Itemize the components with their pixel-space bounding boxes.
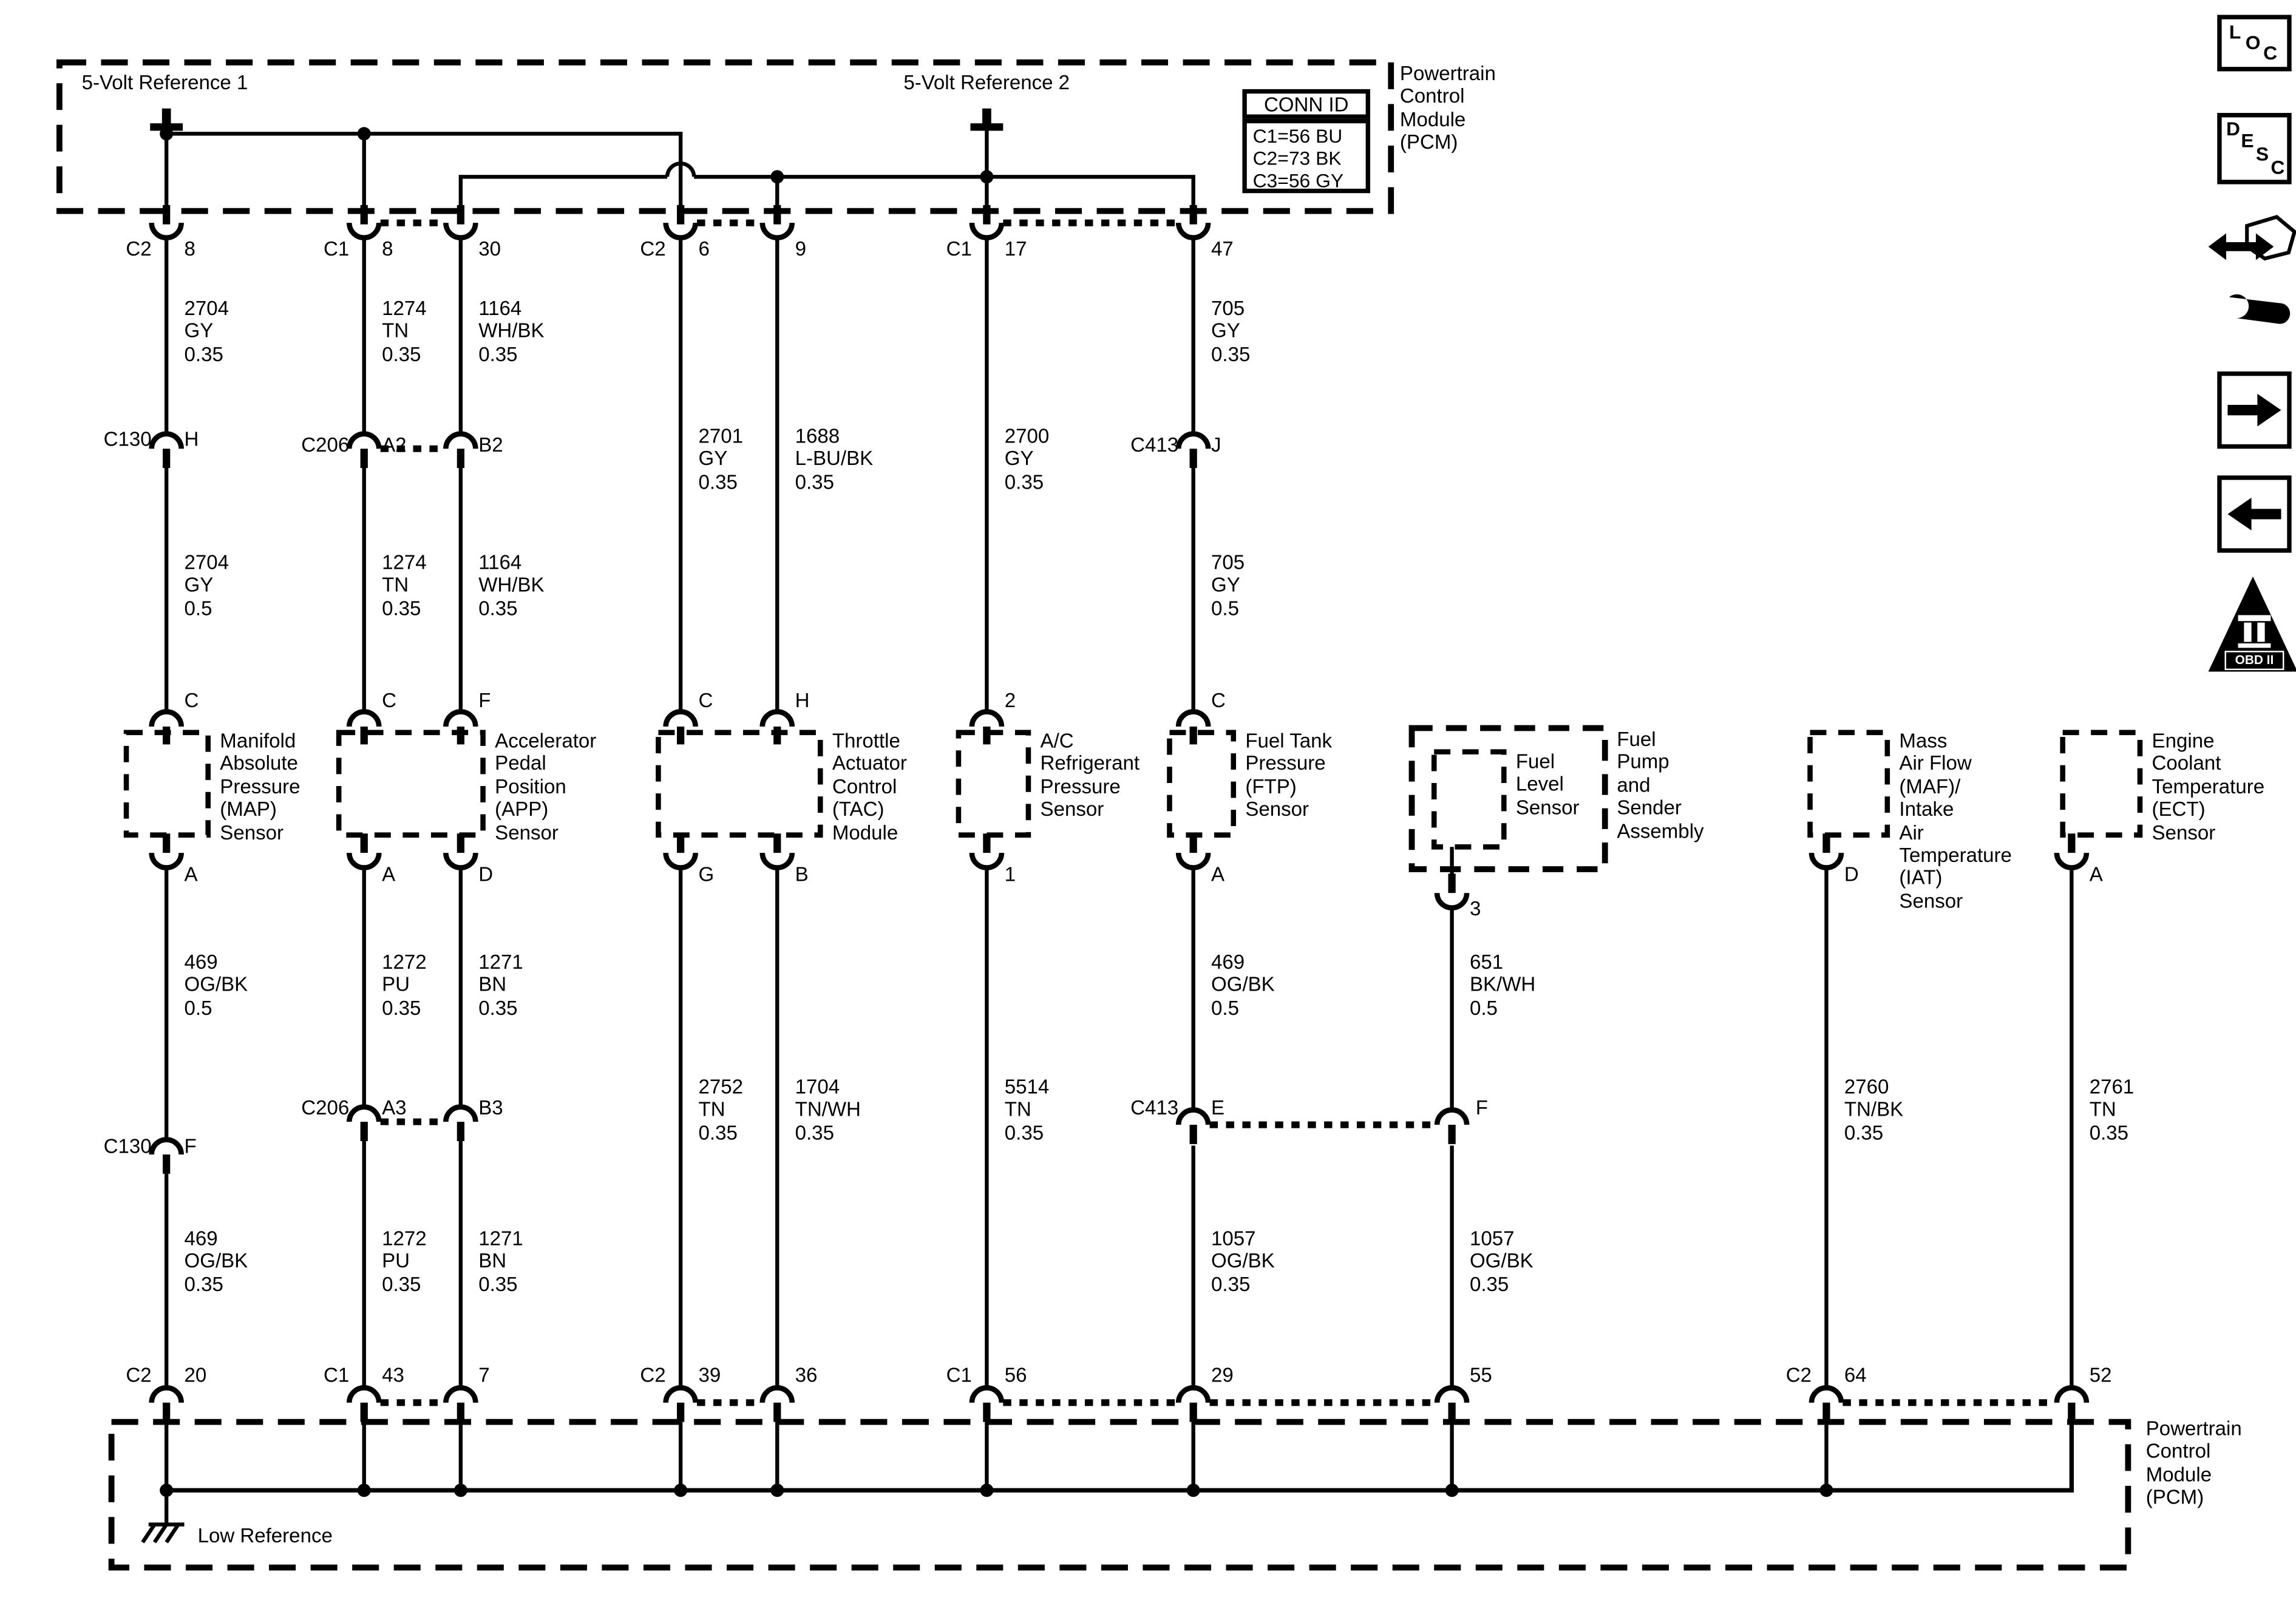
c413-pin-f: F (1476, 1097, 1488, 1120)
next-page-button[interactable] (2217, 371, 2291, 449)
wire-1274-a: 1274 TN 0.35 (382, 297, 427, 366)
wires-into-pcm (166, 1422, 1826, 1491)
prev-page-button[interactable] (2217, 475, 2291, 552)
map-sensor-label: Manifold Absolute Pressure (MAP) Sensor (220, 730, 300, 844)
c413-label-2: C413 (1113, 1097, 1178, 1120)
rowb-pin-43: 43 (382, 1364, 404, 1387)
wire-1164-b: 1164 WH/BK 0.35 (478, 551, 544, 620)
pin-top-tac-h: H (795, 690, 810, 713)
wire-1271-b: 1271 BN 0.35 (478, 1227, 523, 1296)
rowb-conn-c1: C1 (284, 1364, 350, 1387)
row1-pin-6: 6 (699, 238, 710, 261)
power-terminal-icon (150, 109, 1003, 131)
pin-bot-tac-b: B (795, 863, 809, 886)
wiring-nav-tool-icon[interactable] (2209, 214, 2296, 350)
row1-conn-c1: C1 (284, 238, 350, 261)
rowb-pin-7: 7 (478, 1364, 489, 1387)
wire-2701: 2701 GY 0.35 (699, 425, 744, 493)
c413-pin-e: E (1211, 1097, 1224, 1120)
row1-pin-17: 17 (1005, 238, 1027, 261)
sensor-top-pins (152, 712, 1208, 727)
connector-links-row3 (381, 1122, 1436, 1125)
pin-bot-tac-g: G (699, 863, 715, 886)
pin-top-app-f: F (478, 690, 491, 713)
wiring-diagram-page: 5-Volt Reference 1 5-Volt Reference 2 CO… (0, 0, 2296, 1616)
wire-651: 651 BK/WH 0.5 (1470, 951, 1535, 1020)
c206-label: C206 (284, 434, 350, 457)
arrow-left-icon (2222, 480, 2288, 549)
wire-2761: 2761 TN 0.35 (2090, 1076, 2135, 1144)
rowb-pin-29: 29 (1211, 1364, 1234, 1387)
wire-469-b: 469 OG/BK 0.5 (1211, 951, 1275, 1020)
rowb-conn-c1b: C1 (906, 1364, 972, 1387)
arrow-right-icon (2222, 376, 2288, 444)
ftp-sensor-box (1169, 733, 1233, 835)
maf-iat-label: Mass Air Flow (MAF)/ Intake Air Temperat… (1899, 730, 2012, 912)
wire-5514: 5514 TN 0.35 (1005, 1076, 1050, 1144)
c206-pin-b2: B2 (478, 434, 503, 457)
pcm-top-pins (152, 223, 1208, 237)
ect-sensor-label: Engine Coolant Temperature (ECT) Sensor (2152, 730, 2265, 844)
pin-bot-fuel-3: 3 (1470, 898, 1481, 921)
pin-bot-app-d: D (478, 863, 493, 886)
pin-bot-maf-d: D (1844, 863, 1859, 886)
row1-conn-c2: C2 (86, 238, 152, 261)
wire-1272-a: 1272 PU 0.35 (382, 951, 427, 1020)
wire-2752: 2752 TN 0.35 (699, 1076, 744, 1144)
row1-pin-8b: 8 (382, 238, 393, 261)
rowb-pin-55: 55 (1470, 1364, 1492, 1387)
wire-2704-b: 2704 GY 0.5 (185, 551, 229, 620)
pin-bot-app-a: A (382, 863, 395, 886)
map-sensor-box (126, 733, 208, 835)
loc-letter-c: C (2263, 42, 2277, 64)
desc-letter-e: E (2241, 129, 2254, 152)
c206-pin-a2: A2 (382, 434, 406, 457)
wire-1271-a: 1271 BN 0.35 (478, 951, 523, 1020)
wire-705-a: 705 GY 0.35 (1211, 297, 1250, 366)
c130-label: C130 (86, 428, 152, 451)
desc-letter-s: S (2256, 143, 2269, 165)
wire-469-c: 469 OG/BK 0.35 (185, 1227, 248, 1296)
rowb-pin-20: 20 (185, 1364, 207, 1387)
c206-pin-a3: A3 (382, 1097, 406, 1120)
wire-1688: 1688 L-BU/BK 0.35 (795, 425, 874, 493)
c206-pin-b3: B3 (478, 1097, 503, 1120)
row1-pin-8: 8 (185, 238, 195, 261)
tac-module-label: Throttle Actuator Control (TAC) Module (832, 730, 907, 844)
row1-pin-30: 30 (478, 238, 501, 261)
rowb-conn-c2: C2 (86, 1364, 152, 1387)
row1-pin-47: 47 (1211, 238, 1234, 261)
ref2-label: 5-Volt Reference 2 (903, 71, 1070, 94)
sensor-bottom-pins (152, 853, 2087, 908)
wire-1057-a: 1057 OG/BK 0.35 (1211, 1227, 1275, 1296)
low-reference-label: Low Reference (198, 1525, 333, 1548)
ftp-sensor-label: Fuel Tank Pressure (FTP) Sensor (1245, 730, 1332, 821)
pin-bot-ect-a: A (2090, 863, 2103, 886)
c206-label-2: C206 (284, 1097, 350, 1120)
loc-button[interactable]: L O C (2217, 15, 2291, 71)
c130-label-2: C130 (86, 1135, 152, 1158)
low-reference-bus (166, 1422, 2071, 1491)
pcm-top-box (59, 63, 1391, 211)
row1-pin-9: 9 (795, 238, 806, 261)
row1-conn-c1b: C1 (906, 238, 972, 261)
ac-sensor-label: A/C Refrigerant Pressure Sensor (1041, 730, 1140, 821)
conn-id-table: C1=56 BU C2=73 BK C3=56 GY (1242, 119, 1370, 193)
rowb-pin-64: 64 (1844, 1364, 1867, 1387)
pcm-top-label: Powertrain Control Module (PCM) (1400, 63, 1496, 154)
pcm-top-internal-wires (166, 128, 1193, 208)
fuel-level-sensor-box (1434, 752, 1504, 847)
ground-icon (143, 1490, 185, 1542)
rowb-pin-56: 56 (1005, 1364, 1027, 1387)
pin-bot-ftp-a: A (1211, 863, 1224, 886)
fuel-level-label: Fuel Level Sensor (1516, 750, 1580, 819)
loc-letter-l: L (2229, 21, 2241, 43)
wire-1164-a: 1164 WH/BK 0.35 (478, 297, 544, 366)
tac-module-box (658, 733, 820, 835)
pin-bot-map-a: A (185, 863, 198, 886)
desc-letter-c: C (2271, 156, 2284, 178)
wire-2704-a: 2704 GY 0.35 (185, 297, 229, 366)
ref1-label: 5-Volt Reference 1 (82, 71, 248, 94)
c130-pin-h: H (185, 428, 199, 451)
rowb-pin-52: 52 (2090, 1364, 2112, 1387)
rowb-conn-c2c: C2 (1746, 1364, 1812, 1387)
rowb-pin-39: 39 (699, 1364, 721, 1387)
pin-top-app-c: C (382, 690, 396, 713)
wires-lower (166, 868, 2071, 1386)
rowb-pin-36: 36 (795, 1364, 818, 1387)
wire-705-b: 705 GY 0.5 (1211, 551, 1245, 620)
c413-label: C413 (1113, 434, 1178, 457)
row1-conn-c2b: C2 (600, 238, 666, 261)
fuel-pump-label: Fuel Pump and Sender Assembly (1617, 728, 1703, 842)
pin-top-tac-c: C (699, 690, 713, 713)
maf-iat-sensor-box (1810, 733, 1887, 835)
desc-button[interactable]: D E S C (2217, 113, 2291, 184)
conn-id-title: CONN ID (1242, 89, 1370, 119)
pin-bot-ac-1: 1 (1005, 863, 1016, 886)
c130-pin-f: F (185, 1135, 197, 1158)
wire-2700: 2700 GY 0.35 (1005, 425, 1050, 493)
ect-sensor-box (2063, 733, 2140, 835)
c413-pin-j: J (1211, 434, 1221, 457)
wire-1704: 1704 TN/WH 0.35 (795, 1076, 861, 1144)
pin-top-ftp-c: C (1211, 690, 1226, 713)
ac-pressure-sensor-box (959, 733, 1028, 835)
desc-letter-d: D (2226, 117, 2240, 140)
wire-2760: 2760 TN/BK 0.35 (1844, 1076, 1903, 1144)
wire-469-a: 469 OG/BK 0.5 (185, 951, 248, 1020)
loc-letter-o: O (2246, 31, 2261, 53)
pcm-bottom-label: Powertrain Control Module (PCM) (2146, 1417, 2242, 1509)
pin-top-map-c: C (185, 690, 199, 713)
wire-1272-b: 1272 PU 0.35 (382, 1227, 427, 1296)
wire-1274-b: 1274 TN 0.35 (382, 551, 427, 620)
obd2-pillar-icon (2238, 615, 2271, 621)
pin-top-ac-2: 2 (1005, 690, 1016, 713)
app-sensor-label: Accelerator Pedal Position (APP) Sensor (495, 730, 596, 844)
wire-1057-b: 1057 OG/BK 0.35 (1470, 1227, 1533, 1296)
obd2-band-label: OBD II (2225, 651, 2284, 670)
app-sensor-box (339, 733, 483, 835)
rowb-conn-c2b: C2 (600, 1364, 666, 1387)
